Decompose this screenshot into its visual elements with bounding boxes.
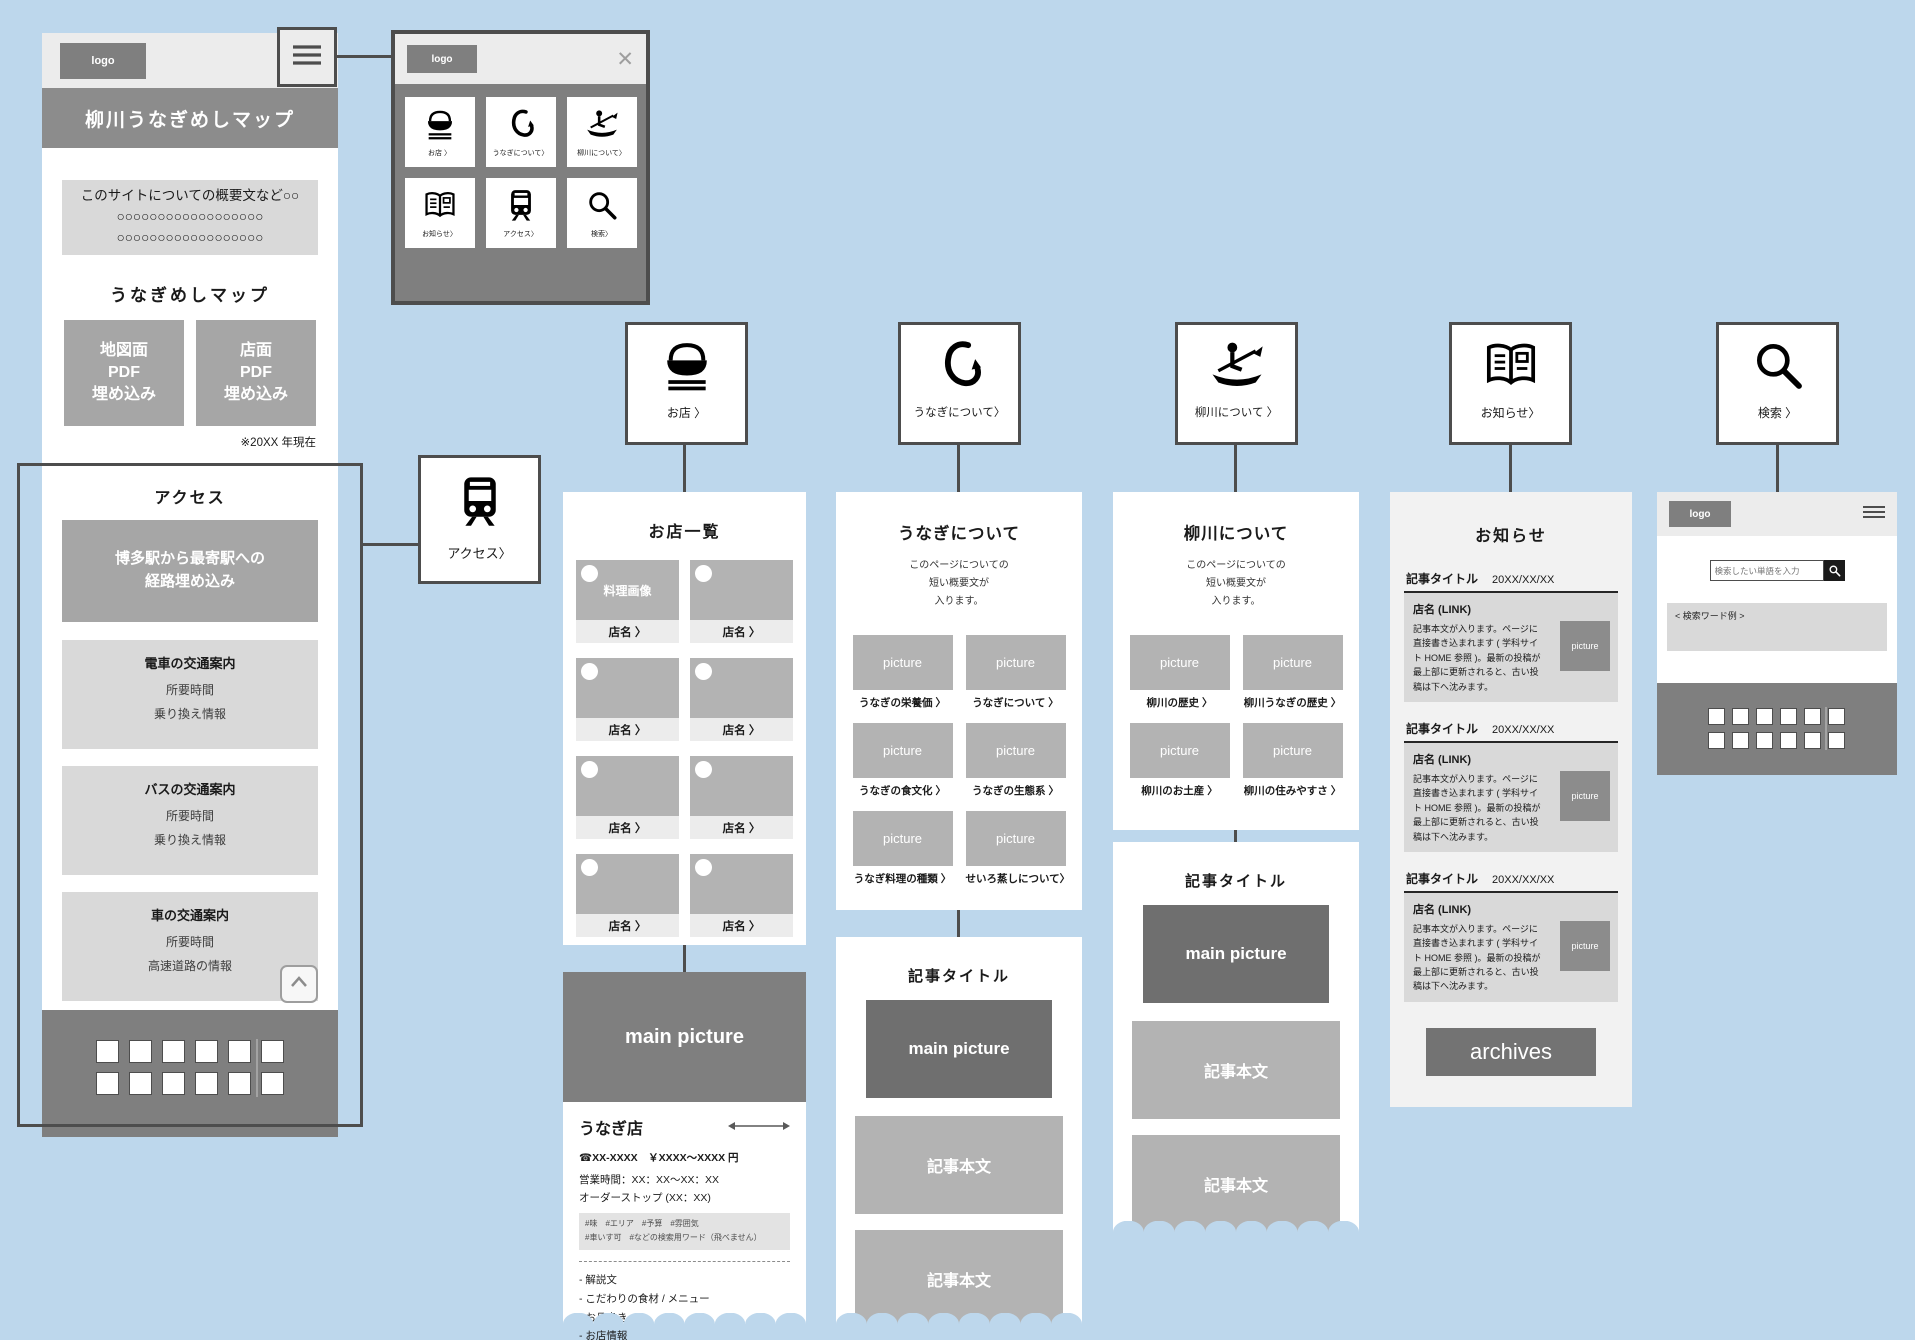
photo-badge bbox=[581, 761, 598, 778]
map-pdf-button[interactable]: 地図面 PDF 埋め込み bbox=[64, 320, 184, 426]
train-icon bbox=[504, 188, 538, 227]
sns-square-icon[interactable] bbox=[1708, 732, 1725, 749]
topic-picture: picture bbox=[853, 635, 953, 690]
section-card-label: 検索 〉 bbox=[1758, 404, 1797, 421]
menu-item-shops[interactable]: お店 〉 bbox=[405, 97, 475, 167]
topic-picture: picture bbox=[966, 635, 1066, 690]
shop-tel-price: ☎XX-XXXX ￥XXXX〜XXXX 円 bbox=[579, 1150, 790, 1165]
sns-square-icon[interactable] bbox=[1804, 732, 1821, 749]
rice-bowl-icon bbox=[659, 337, 715, 398]
news-page: お知らせ 記事タイトル 20XX/XX/XX 店名 (LINK) 記事本文が入り… bbox=[1390, 492, 1632, 1107]
topic-link[interactable]: せいろ蒸しについて〉 bbox=[966, 871, 1066, 886]
page-title: 柳川について bbox=[1113, 520, 1359, 544]
news-card-body: 店名 (LINK) 記事本文が入ります。ページに直接書き込まれます ( 学科サイ… bbox=[1404, 743, 1618, 852]
map-section-heading: うなぎめしマップ bbox=[42, 281, 338, 306]
intro-line: 短い概要文が bbox=[1113, 575, 1359, 593]
shop-photo: 料理画像 bbox=[576, 560, 679, 620]
topic-grid: picture 柳川の歴史 〉 picture 柳川うなぎの歴史 〉 pictu… bbox=[1113, 635, 1359, 798]
menu-item-about-unagi[interactable]: うなぎについて〉 bbox=[486, 97, 556, 167]
intro-line: このページについての bbox=[1113, 557, 1359, 575]
photo-badge bbox=[695, 663, 712, 680]
news-article-date: 20XX/XX/XX bbox=[1492, 724, 1554, 736]
menu-item-about-yanagawa[interactable]: 柳川について〉 bbox=[567, 97, 637, 167]
topic-link[interactable]: うなぎの生態系 〉 bbox=[966, 783, 1066, 798]
shop-order-stop: オーダーストップ (XX：XX) bbox=[579, 1190, 790, 1205]
topic-tile[interactable]: picture 柳川うなぎの歴史 〉 bbox=[1243, 635, 1343, 710]
page-title: お知らせ bbox=[1390, 522, 1632, 546]
news-article-card[interactable]: 記事タイトル 20XX/XX/XX 店名 (LINK) 記事本文が入ります。ペー… bbox=[1404, 870, 1618, 1002]
connector-line bbox=[1234, 830, 1237, 842]
shop-name-link[interactable]: 店名 〉 bbox=[576, 718, 679, 741]
shop-tags-line: #車いす可 #などの検索用ワード（飛べません） bbox=[585, 1231, 784, 1245]
sns-square-icon[interactable] bbox=[1828, 708, 1845, 725]
article-body-block: 記事本文 bbox=[1132, 1135, 1340, 1233]
article-page: 記事タイトル main picture 記事本文 記事本文 bbox=[836, 937, 1082, 1328]
shop-info-item: - こだわりの食材 / メニュー bbox=[579, 1290, 790, 1309]
shop-tile[interactable]: 店名 〉 bbox=[690, 560, 793, 643]
topic-tile[interactable]: picture うなぎの生態系 〉 bbox=[966, 723, 1066, 798]
topic-tile[interactable]: picture 柳川のお土産 〉 bbox=[1130, 723, 1230, 798]
shop-name-link[interactable]: 店名 〉 bbox=[576, 620, 679, 643]
site-title: 柳川うなぎめしマップ bbox=[42, 88, 338, 148]
shop-pdf-line: PDF bbox=[240, 362, 272, 384]
news-article-title: 記事タイトル bbox=[1406, 570, 1478, 587]
article-title: 記事タイトル bbox=[836, 965, 1082, 986]
shop-tile[interactable]: 店名 〉 bbox=[576, 658, 679, 741]
shop-tile[interactable]: 料理画像 店名 〉 bbox=[576, 560, 679, 643]
photo-badge bbox=[695, 761, 712, 778]
shop-info-list: - 解説文 - こだわりの食材 / メニュー - お品書き - お店情報 bbox=[579, 1271, 790, 1340]
shop-tile[interactable]: 店名 〉 bbox=[690, 854, 793, 937]
news-picture: picture bbox=[1560, 921, 1610, 971]
topic-picture: picture bbox=[853, 811, 953, 866]
article-body-block: 記事本文 bbox=[855, 1116, 1063, 1214]
shop-photo bbox=[576, 854, 679, 914]
search-bar bbox=[1657, 560, 1897, 581]
menu-item-label: うなぎについて〉 bbox=[493, 148, 549, 158]
news-card-header: 記事タイトル 20XX/XX/XX bbox=[1404, 720, 1618, 743]
topic-tile[interactable]: picture うなぎについて 〉 bbox=[966, 635, 1066, 710]
popup-menu-grid: お店 〉 うなぎについて〉 柳川について〉 お知らせ〉 アクセス〉 検索〉 bbox=[395, 97, 646, 248]
logo[interactable]: logo bbox=[60, 43, 146, 79]
footer-divider bbox=[1825, 707, 1827, 750]
topic-picture: picture bbox=[966, 811, 1066, 866]
intro-line: このページについての bbox=[836, 557, 1082, 575]
hamburger-icon bbox=[292, 44, 322, 71]
photo-badge bbox=[581, 663, 598, 680]
shop-tile[interactable]: 店名 〉 bbox=[690, 658, 793, 741]
menu-item-label: お知らせ〉 bbox=[422, 229, 457, 239]
sns-square-icon[interactable] bbox=[1804, 708, 1821, 725]
shop-hours: 営業時間：XX：XX〜XX：XX bbox=[579, 1172, 790, 1187]
fishhook-icon bbox=[932, 337, 988, 398]
menu-item-news[interactable]: お知らせ〉 bbox=[405, 178, 475, 248]
photo-badge bbox=[695, 565, 712, 582]
topic-picture: picture bbox=[1243, 723, 1343, 778]
sns-square-icon[interactable] bbox=[1828, 732, 1845, 749]
sns-square-icon[interactable] bbox=[1732, 732, 1749, 749]
menu-item-label: 柳川について〉 bbox=[577, 148, 626, 158]
footer-sns-grid bbox=[1708, 708, 1846, 749]
shop-tile[interactable]: 店名 〉 bbox=[576, 756, 679, 839]
section-card-label: お知らせ〉 bbox=[1481, 404, 1541, 421]
concept-line: ○○○○○○○○○○○○○○○○○○ bbox=[66, 228, 314, 249]
search-page-footer bbox=[1657, 683, 1897, 775]
topic-link[interactable]: うなぎ料理の種類 〉 bbox=[853, 871, 953, 886]
intro-line: 入ります。 bbox=[836, 593, 1082, 611]
hamburger-menu-button[interactable] bbox=[277, 27, 337, 87]
news-card-body: 店名 (LINK) 記事本文が入ります。ページに直接書き込まれます ( 学科サイ… bbox=[1404, 593, 1618, 702]
close-icon[interactable]: ✕ bbox=[616, 47, 634, 72]
logo[interactable]: logo bbox=[1669, 501, 1731, 527]
hamburger-menu-popup: logo ✕ お店 〉 うなぎについて〉 柳川について〉 お知らせ〉 ア bbox=[391, 30, 650, 305]
shop-photo bbox=[690, 658, 793, 718]
section-card-label: うなぎについて〉 bbox=[914, 404, 1006, 420]
rowing-icon bbox=[585, 107, 619, 146]
news-card-body: 店名 (LINK) 記事本文が入ります。ページに直接書き込まれます ( 学科サイ… bbox=[1404, 893, 1618, 1002]
menu-item-access[interactable]: アクセス〉 bbox=[486, 178, 556, 248]
hamburger-icon[interactable] bbox=[1863, 505, 1885, 524]
shop-name-link[interactable]: 店名 〉 bbox=[690, 816, 793, 839]
sns-square-icon[interactable] bbox=[1732, 708, 1749, 725]
shop-tile[interactable]: 店名 〉 bbox=[690, 756, 793, 839]
photo-badge bbox=[581, 565, 598, 582]
news-article-date: 20XX/XX/XX bbox=[1492, 874, 1554, 886]
intro-line: 入ります。 bbox=[1113, 593, 1359, 611]
logo[interactable]: logo bbox=[407, 45, 477, 73]
intro-line: 短い概要文が bbox=[836, 575, 1082, 593]
shop-tags-line: #味 #エリア #予算 #雰囲気 bbox=[585, 1217, 784, 1231]
map-buttons-row: 地図面 PDF 埋め込み 店面 PDF 埋め込み bbox=[42, 320, 338, 426]
swipe-arrow-icon bbox=[728, 1118, 790, 1136]
news-picture: picture bbox=[1560, 621, 1610, 671]
topic-link[interactable]: うなぎの食文化 〉 bbox=[853, 783, 953, 798]
torn-edge bbox=[1113, 1221, 1359, 1237]
topic-picture: picture bbox=[966, 723, 1066, 778]
topic-link[interactable]: 柳川の歴史 〉 bbox=[1130, 695, 1230, 710]
map-pdf-line: 埋め込み bbox=[92, 384, 156, 406]
search-page-header: logo bbox=[1657, 492, 1897, 536]
sns-square-icon[interactable] bbox=[1780, 708, 1797, 725]
news-article-title: 記事タイトル bbox=[1406, 720, 1478, 737]
shop-list-page: お店一覧 料理画像 店名 〉 店名 〉 店名 〉 店名 〉 店名 〉 bbox=[563, 492, 806, 945]
shop-name-link[interactable]: 店名 〉 bbox=[690, 914, 793, 937]
topic-tile[interactable]: picture うなぎの栄養価 〉 bbox=[853, 635, 953, 710]
topic-link[interactable]: 柳川うなぎの歴史 〉 bbox=[1243, 695, 1343, 710]
connector-line bbox=[1776, 445, 1779, 492]
torn-edge bbox=[836, 1313, 1082, 1329]
topic-link[interactable]: 柳川の住みやすさ 〉 bbox=[1243, 783, 1343, 798]
connector-line bbox=[1234, 445, 1237, 492]
menu-item-search[interactable]: 検索〉 bbox=[567, 178, 637, 248]
menu-item-label: アクセス〉 bbox=[503, 229, 538, 239]
connector-line bbox=[957, 910, 960, 937]
menu-item-label: お店 〉 bbox=[428, 148, 451, 158]
shop-photo bbox=[690, 560, 793, 620]
connector-line bbox=[1509, 445, 1512, 492]
site-concept-text: このサイトについての概要文など○○ ○○○○○○○○○○○○○○○○○○ ○○○… bbox=[62, 180, 318, 255]
connector-line bbox=[957, 445, 960, 492]
map-pdf-line: 地図面 bbox=[100, 340, 148, 362]
news-body-text: 記事本文が入ります。ページに直接書き込まれます ( 学科サイト HOME 参照 … bbox=[1413, 922, 1541, 994]
connector-line bbox=[683, 445, 686, 492]
access-section-outline bbox=[17, 463, 363, 1127]
news-picture: picture bbox=[1560, 771, 1610, 821]
photo-badge bbox=[695, 859, 712, 876]
shop-pdf-button[interactable]: 店面 PDF 埋め込み bbox=[196, 320, 316, 426]
topic-tile[interactable]: picture 柳川の住みやすさ 〉 bbox=[1243, 723, 1343, 798]
section-card-label: アクセス〉 bbox=[447, 543, 511, 562]
article-title: 記事タイトル bbox=[1113, 870, 1359, 891]
news-card-header: 記事タイトル 20XX/XX/XX bbox=[1404, 870, 1618, 893]
news-article-date: 20XX/XX/XX bbox=[1492, 574, 1554, 586]
shop-main-picture: main picture bbox=[563, 972, 806, 1102]
concept-line: ○○○○○○○○○○○○○○○○○○ bbox=[66, 207, 314, 228]
news-article-card[interactable]: 記事タイトル 20XX/XX/XX 店名 (LINK) 記事本文が入ります。ペー… bbox=[1404, 720, 1618, 852]
news-card-header: 記事タイトル 20XX/XX/XX bbox=[1404, 570, 1618, 593]
topic-link[interactable]: 柳川のお土産 〉 bbox=[1130, 783, 1230, 798]
connector-line bbox=[337, 55, 391, 58]
shop-grid: 料理画像 店名 〉 店名 〉 店名 〉 店名 〉 店名 〉 店名 〉 bbox=[563, 560, 806, 937]
page-title: お店一覧 bbox=[563, 518, 806, 542]
topic-picture: picture bbox=[1243, 635, 1343, 690]
map-pdf-line: PDF bbox=[108, 362, 140, 384]
divider bbox=[579, 1261, 790, 1262]
torn-edge bbox=[563, 1313, 806, 1329]
section-card-search[interactable]: 検索 〉 bbox=[1716, 322, 1839, 445]
fishhook-icon bbox=[504, 107, 538, 146]
photo-badge bbox=[581, 859, 598, 876]
book-icon bbox=[1483, 337, 1539, 398]
news-shop-link[interactable]: 店名 (LINK) bbox=[1413, 601, 1609, 617]
news-shop-link[interactable]: 店名 (LINK) bbox=[1413, 751, 1609, 767]
shop-info-item: - 解説文 bbox=[579, 1271, 790, 1290]
topic-tile[interactable]: picture うなぎ料理の種類 〉 bbox=[853, 811, 953, 886]
news-article-title: 記事タイトル bbox=[1406, 870, 1478, 887]
topic-tile[interactable]: picture うなぎの食文化 〉 bbox=[853, 723, 953, 798]
news-body-text: 記事本文が入ります。ページに直接書き込まれます ( 学科サイト HOME 参照 … bbox=[1413, 622, 1541, 694]
about-unagi-page: うなぎについて このページについての 短い概要文が 入ります。 picture … bbox=[836, 492, 1082, 910]
section-card-label: お店 〉 bbox=[667, 404, 706, 421]
shop-photo bbox=[690, 854, 793, 914]
topic-link[interactable]: うなぎについて 〉 bbox=[966, 695, 1066, 710]
section-card-label: 柳川について 〉 bbox=[1195, 404, 1278, 420]
topic-picture: picture bbox=[1130, 635, 1230, 690]
sns-square-icon[interactable] bbox=[1756, 732, 1773, 749]
about-yanagawa-page: 柳川について このページについての 短い概要文が 入ります。 picture 柳… bbox=[1113, 492, 1359, 830]
shop-name-link[interactable]: 店名 〉 bbox=[576, 816, 679, 839]
shop-name-link[interactable]: 店名 〉 bbox=[690, 718, 793, 741]
page-title: うなぎについて bbox=[836, 520, 1082, 544]
sns-square-icon[interactable] bbox=[1708, 708, 1725, 725]
topic-tile[interactable]: picture せいろ蒸しについて〉 bbox=[966, 811, 1066, 886]
book-icon bbox=[423, 188, 457, 227]
shop-pdf-line: 埋め込み bbox=[224, 384, 288, 406]
train-icon bbox=[453, 474, 507, 533]
popup-header: logo ✕ bbox=[395, 34, 646, 84]
news-article-card[interactable]: 記事タイトル 20XX/XX/XX 店名 (LINK) 記事本文が入ります。ペー… bbox=[1404, 570, 1618, 702]
access-section-card[interactable]: アクセス〉 bbox=[418, 455, 541, 584]
shop-photo bbox=[690, 756, 793, 816]
article-body-block: 記事本文 bbox=[1132, 1021, 1340, 1119]
topic-grid: picture うなぎの栄養価 〉 picture うなぎについて 〉 pict… bbox=[836, 635, 1082, 886]
topic-picture: picture bbox=[853, 723, 953, 778]
search-icon bbox=[585, 188, 619, 227]
archives-button[interactable]: archives bbox=[1426, 1028, 1596, 1076]
shop-pdf-line: 店面 bbox=[240, 340, 272, 362]
page-intro: このページについての 短い概要文が 入ります。 bbox=[836, 557, 1082, 611]
article-main-picture: main picture bbox=[866, 1000, 1052, 1098]
rice-bowl-icon bbox=[423, 107, 457, 146]
shop-photo-caption: 料理画像 bbox=[603, 582, 651, 599]
topic-tile[interactable]: picture 柳川の歴史 〉 bbox=[1130, 635, 1230, 710]
news-shop-link[interactable]: 店名 (LINK) bbox=[1413, 901, 1609, 917]
search-input[interactable] bbox=[1710, 560, 1824, 581]
shop-name: うなぎ店 bbox=[579, 1115, 643, 1139]
page-intro: このページについての 短い概要文が 入ります。 bbox=[1113, 557, 1359, 611]
search-keyword-examples: < 検索ワード例 > bbox=[1667, 603, 1887, 651]
article-main-picture: main picture bbox=[1143, 905, 1329, 1003]
shop-info-item: - お店情報 bbox=[579, 1327, 790, 1340]
concept-line: このサイトについての概要文など○○ bbox=[66, 186, 314, 207]
shop-tile[interactable]: 店名 〉 bbox=[576, 854, 679, 937]
connector-line bbox=[683, 945, 686, 972]
sitemap-wireframe-canvas: logo 柳川うなぎめしマップ このサイトについての概要文など○○ ○○○○○○… bbox=[0, 0, 1915, 1340]
search-icon bbox=[1750, 337, 1806, 398]
shop-detail-page: main picture うなぎ店 ☎XX-XXXX ￥XXXX〜XXXX 円 … bbox=[563, 972, 806, 1328]
section-card-news[interactable]: お知らせ〉 bbox=[1449, 322, 1572, 445]
search-submit-button[interactable] bbox=[1824, 560, 1845, 581]
shop-name-link[interactable]: 店名 〉 bbox=[576, 914, 679, 937]
shop-tags-box: #味 #エリア #予算 #雰囲気 #車いす可 #などの検索用ワード（飛べません） bbox=[579, 1213, 790, 1250]
map-note: ※20XX 年現在 bbox=[42, 434, 338, 450]
section-card-about-unagi[interactable]: うなぎについて〉 bbox=[898, 322, 1021, 445]
connector-line bbox=[363, 543, 418, 546]
sns-square-icon[interactable] bbox=[1756, 708, 1773, 725]
menu-item-label: 検索〉 bbox=[591, 229, 612, 239]
rowing-icon bbox=[1209, 337, 1265, 398]
shop-name-link[interactable]: 店名 〉 bbox=[690, 620, 793, 643]
shop-photo bbox=[576, 756, 679, 816]
search-page: logo < 検索ワード例 > bbox=[1657, 492, 1897, 775]
section-card-about-yanagawa[interactable]: 柳川について 〉 bbox=[1175, 322, 1298, 445]
article-page: 記事タイトル main picture 記事本文 記事本文 bbox=[1113, 842, 1359, 1236]
news-body-text: 記事本文が入ります。ページに直接書き込まれます ( 学科サイト HOME 参照 … bbox=[1413, 772, 1541, 844]
topic-picture: picture bbox=[1130, 723, 1230, 778]
shop-photo bbox=[576, 658, 679, 718]
topic-link[interactable]: うなぎの栄養価 〉 bbox=[853, 695, 953, 710]
section-card-shops[interactable]: お店 〉 bbox=[625, 322, 748, 445]
sns-square-icon[interactable] bbox=[1780, 732, 1797, 749]
